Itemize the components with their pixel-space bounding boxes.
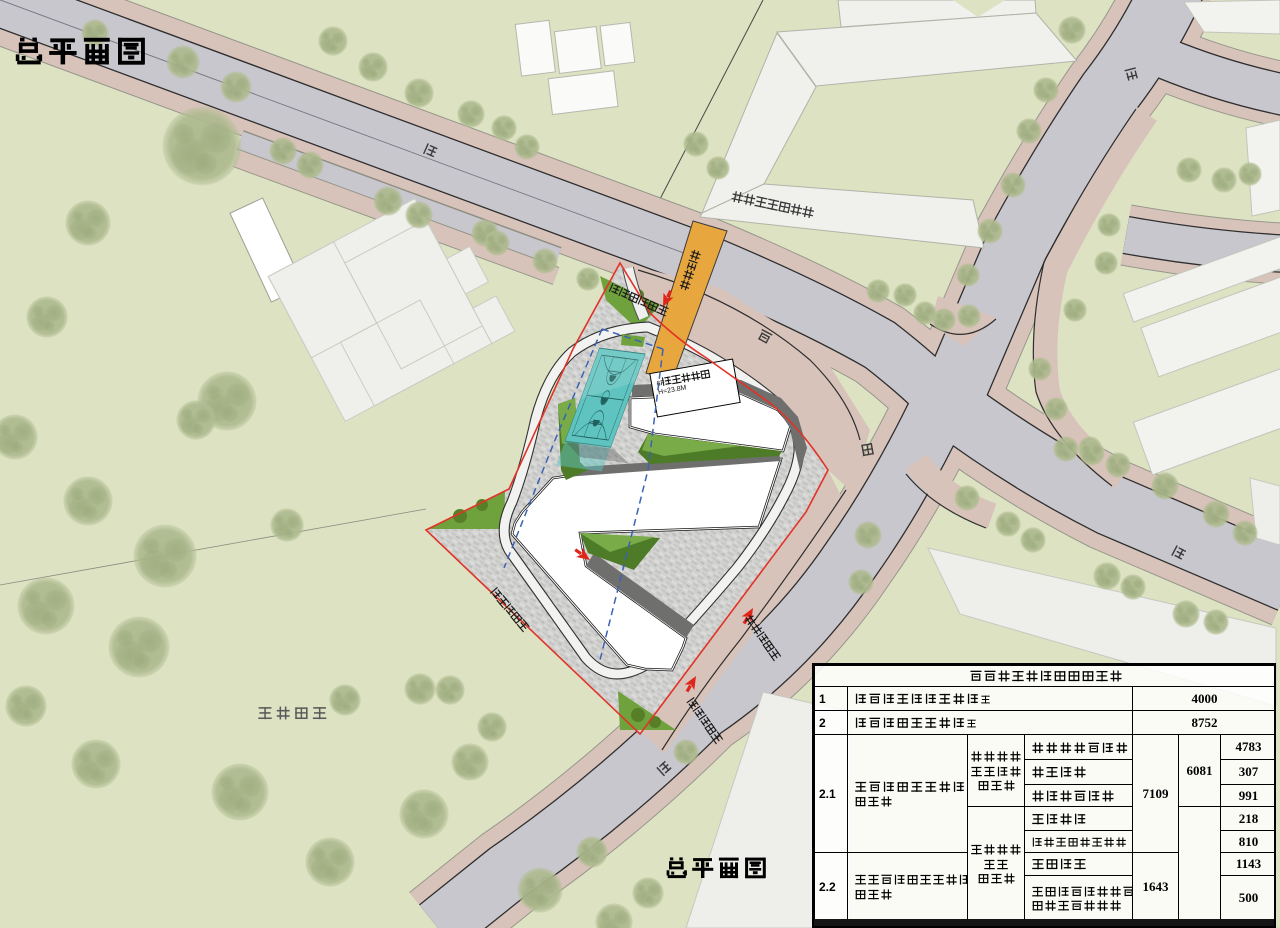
svg-text:6F: 6F [656, 380, 665, 388]
